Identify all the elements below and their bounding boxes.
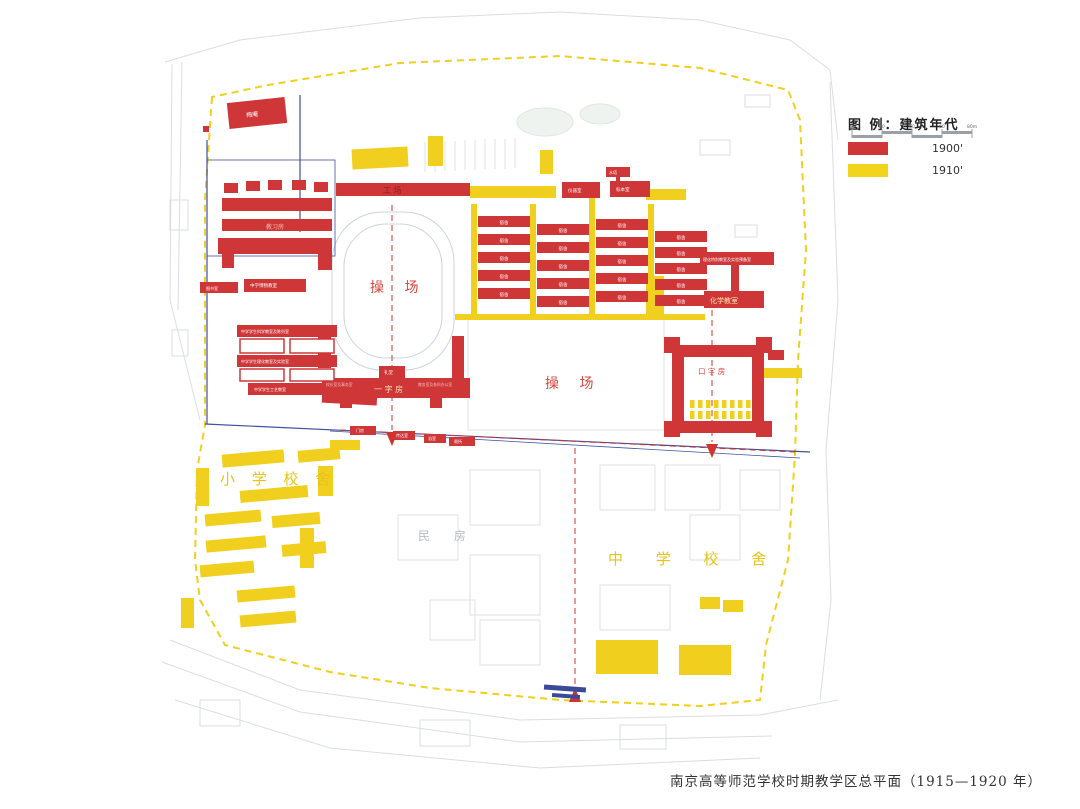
svg-text:宿舍: 宿舍 <box>500 291 509 298</box>
label-chem: 化学教室 <box>710 296 738 305</box>
label-top-b: 标本室 <box>616 186 630 193</box>
svg-text:宿舍: 宿舍 <box>500 273 509 280</box>
legend: 图 例：建筑年代 1900' 1910' 0 20 40 60 80m <box>848 114 1008 177</box>
svg-text:宿舍: 宿舍 <box>618 294 627 301</box>
svg-text:宿舍: 宿舍 <box>618 222 627 229</box>
label-jiaoxifang: 教习房 <box>266 223 284 231</box>
label-gate-c: 浴室 <box>428 435 436 441</box>
label-small-a: 图书室 <box>206 285 218 291</box>
svg-text:宿舍: 宿舍 <box>500 219 509 226</box>
label-gate-b: 传达室 <box>396 432 408 438</box>
page: { "caption": "南京高等师范学校时期教学区总平面（1915—1920… <box>0 0 1080 809</box>
legend-label-1910s: 1910' <box>932 164 963 177</box>
label-top-a: 仪器室 <box>568 187 582 194</box>
svg-text:宿舍: 宿舍 <box>618 276 627 283</box>
label-gongchang: 工 场 <box>383 186 402 195</box>
label-wing-left: 校长室及事务室 <box>326 382 353 387</box>
label-top-c: 水塔 <box>609 169 617 175</box>
svg-text:宿舍: 宿舍 <box>559 245 568 252</box>
legend-item-1910s: 1910' <box>848 164 1008 177</box>
scale-tick-80m: 80m <box>967 124 977 130</box>
label-gate-a: 门房 <box>356 427 364 433</box>
svg-text:宿舍: 宿舍 <box>559 227 568 234</box>
legend-swatch-1910s <box>848 164 888 177</box>
label-small-b: 中学博物教室 <box>250 282 277 289</box>
label-middle-school: 中 学 校 舍 <box>608 550 780 568</box>
label-lab-row: 理化特别教室及实验预备室 <box>703 256 751 262</box>
label-yizifang: 一 字 房 <box>374 384 403 394</box>
map-caption: 南京高等师范学校时期教学区总平面（1915—1920 年） <box>670 770 1042 790</box>
label-gate-d: 厕所 <box>454 438 462 444</box>
label-left-bar3: 中学学生工艺教室 <box>254 386 286 392</box>
label-playground-1: 操 场 <box>370 280 426 296</box>
scale-tick-40: 40 <box>909 124 915 130</box>
label-left-bar2: 中学学生理化教室及实验室 <box>241 358 289 364</box>
label-playground-2: 操 场 <box>545 376 601 392</box>
svg-text:宿舍: 宿舍 <box>559 263 568 270</box>
svg-text:宿舍: 宿舍 <box>677 250 686 257</box>
svg-text:宿舍: 宿舍 <box>677 298 686 305</box>
label-kouzifang: 口 字 房 <box>698 366 725 376</box>
label-primary-school: 小 学 校 舍 <box>220 470 336 488</box>
svg-text:宿舍: 宿舍 <box>559 281 568 288</box>
label-meian: 梅庵 <box>246 110 259 119</box>
svg-text:宿舍: 宿舍 <box>559 299 568 306</box>
svg-text:宿舍: 宿舍 <box>618 240 627 247</box>
svg-text:宿舍: 宿舍 <box>677 282 686 289</box>
svg-text:宿舍: 宿舍 <box>500 255 509 262</box>
label-minfang: 民 房 <box>418 528 476 543</box>
svg-text:宿舍: 宿舍 <box>618 258 627 265</box>
scale-tick-20: 20 <box>879 124 885 130</box>
label-stub-hall: 礼堂 <box>384 369 393 376</box>
scale-tick-60: 60 <box>939 124 945 130</box>
svg-text:宿舍: 宿舍 <box>677 266 686 273</box>
svg-text:宿舍: 宿舍 <box>500 237 509 244</box>
label-left-bar1: 中学学生科学教室及陈列室 <box>241 328 289 334</box>
scale-tick-0: 0 <box>850 124 853 130</box>
scale-bar: 0 20 40 60 80m <box>848 124 988 144</box>
svg-text:宿舍: 宿舍 <box>677 234 686 241</box>
label-wing-right: 教务室及各科办公室 <box>418 382 452 387</box>
